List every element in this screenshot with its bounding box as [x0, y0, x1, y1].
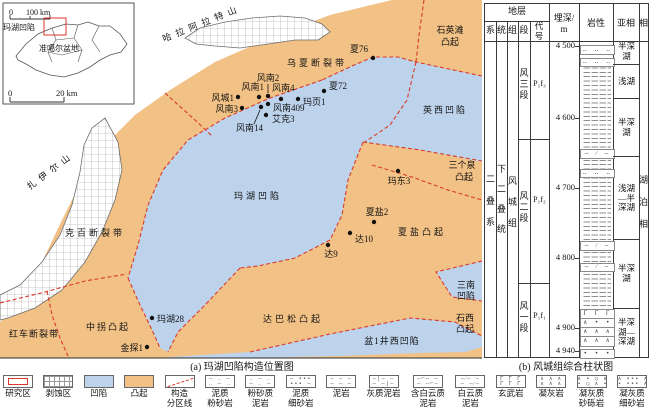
subfacies-label: 浅湖—半深湖: [614, 184, 639, 213]
svg-text:20 km: 20 km: [56, 88, 78, 98]
header-facies: 相: [639, 19, 648, 29]
grid-line: [613, 64, 639, 65]
inset-mahu-label: 玛湖凹陷: [3, 22, 35, 32]
formation-name: 风城组: [507, 171, 518, 234]
depth-tick: [575, 328, 579, 329]
header-depth: 埋深/: [549, 14, 579, 24]
region-label-zhongguai-uplift: 中拐凸起: [86, 321, 130, 332]
structural-map: 哈拉阿拉特山 扎伊尔山 乌夏断裂带 石英滩 凸起 英西凹陷 三个泉 凸起 玛湖凹…: [0, 0, 482, 374]
subfacies-label: 浅湖: [614, 77, 639, 87]
header-member: 段: [518, 26, 530, 36]
header-code: 代号: [534, 22, 544, 41]
legend-swatch-erosion-area: [43, 375, 73, 388]
depth-tick: [575, 258, 579, 259]
region-label-wuxia-fault-belt: 乌夏断裂带: [287, 57, 347, 68]
system-name: 二叠系: [485, 169, 496, 234]
region-label-xiayan-uplift: 夏盐凸起: [398, 226, 446, 237]
header-series: 统: [496, 26, 507, 36]
code-p1f1: P₁f₁: [530, 312, 549, 321]
inset-scale-label: 100 km: [26, 8, 51, 17]
legend-item: 剥蚀区: [43, 375, 73, 416]
legend-item: 构造 分区线: [165, 375, 195, 416]
code-p1f2: P₁f₂: [530, 196, 549, 205]
svg-text:风南3: 风南3: [215, 103, 238, 114]
depth-tick-label: 4 600: [549, 113, 575, 122]
legend-item: —|— —— —|— 灰质泥岩: [367, 375, 401, 416]
svg-text:夏盐2: 夏盐2: [366, 206, 389, 217]
svg-text:风南409: 风南409: [273, 102, 305, 113]
legend-swatch-limy-mudstone: —|— —— —|—: [369, 375, 399, 388]
legend-swatch-tuffaceous-glutenite: ∧ • ○ ∧• ○ ∧ •: [577, 375, 607, 388]
legend-item: — ••• ••• — 泥质 细砂岩: [286, 375, 316, 416]
svg-text:玛东3: 玛东3: [388, 175, 411, 186]
header-depth-unit: m: [549, 25, 579, 35]
grid-line: [613, 156, 639, 157]
depth-tick-label: 4 940: [549, 346, 575, 355]
subfacies-label: 半深湖: [614, 118, 639, 137]
lith-bed-dolomitic: — ⁄ —: [580, 241, 615, 251]
svg-text:风南1: 风南1: [241, 81, 264, 92]
depth-tick: [575, 118, 579, 119]
legend-item: ∧ ∧ ∧∧ ∧ ∧ 凝灰岩: [536, 375, 566, 416]
region-label-sangequan-uplift: 三个泉: [448, 159, 475, 170]
inset-basin-label: 准噶尔盆地: [39, 43, 79, 53]
legend-swatch-dolomitic-mudstone: —⁄— —— —⁄—: [455, 375, 485, 388]
header-subfacies: 亚相: [613, 19, 639, 29]
grid-line: [613, 98, 639, 99]
svg-text:风南4: 风南4: [272, 82, 295, 93]
subfacies-label: 半深湖—深湖: [614, 318, 639, 347]
legend-item: 研究区: [3, 375, 33, 416]
series-name: 下二叠统: [496, 159, 507, 239]
subfacies-label: 半深湖: [614, 264, 639, 283]
lith-bed-silty-sand: ‥ ‥ ‥: [580, 169, 615, 178]
legend-item: — — —— — — 泥岩: [326, 375, 356, 416]
region-label-kebai-fault-belt: 克百断裂带: [65, 227, 125, 238]
legend-swatch-tectonic-line: [165, 375, 195, 388]
lith-bed-silty-sand: ‥ ‥ ‥: [580, 58, 615, 67]
svg-text:夏72: 夏72: [329, 81, 347, 91]
legend-item: 凸起: [124, 375, 154, 416]
member-feng1: 风一段: [518, 301, 530, 334]
region-label-yingxi-sag: 英西凹陷: [423, 104, 467, 115]
legend-item: 凹陷: [84, 375, 114, 416]
svg-text:0: 0: [8, 88, 12, 98]
svg-text:凸起: 凸起: [455, 172, 473, 182]
svg-text:达10: 达10: [355, 233, 374, 244]
region-label-shixi-uplift: 石西: [456, 313, 474, 323]
grid-line: [613, 308, 639, 309]
legend-swatch-tuff: ∧ ∧ ∧∧ ∧ ∧: [536, 375, 566, 388]
header-strata: 地层: [485, 7, 549, 17]
depth-tick: [575, 188, 579, 189]
legend-swatch-muddy-fine-sandstone: — ••• ••• —: [286, 375, 316, 388]
svg-text:玛湖28: 玛湖28: [157, 314, 185, 324]
header-lithology: 岩性: [579, 19, 613, 29]
legend-swatch-silty-mudstone: ‥ — ‥— ‥ —: [245, 375, 275, 388]
grid-line: [613, 239, 639, 240]
lith-bed-tuff: ∧ ∧ ∧: [580, 336, 615, 347]
legend-swatch-research-area: [3, 375, 33, 388]
svg-text:凸起: 凸起: [441, 37, 459, 47]
code-p1f3: P₁f₃: [530, 80, 549, 89]
svg-text:风南14: 风南14: [236, 122, 264, 133]
grid-line: [579, 4, 580, 357]
depth-tick: [575, 351, 579, 352]
grid-line: [518, 283, 549, 284]
depth-tick-label: 4 700: [549, 183, 575, 192]
member-feng2: 风二段: [518, 191, 530, 224]
figure-mahu-sag: 哈拉阿拉特山 扎伊尔山 乌夏断裂带 石英滩 凸起 英西凹陷 三个泉 凸起 玛湖凹…: [0, 0, 650, 416]
member-feng3: 风三段: [518, 68, 530, 101]
legend-swatch-muddy-siltstone: — ‥ —‥ — ‥: [205, 375, 235, 388]
grid-line: [549, 4, 550, 357]
svg-text:凹陷: 凹陷: [457, 290, 475, 301]
lith-bed-silty-sand: ‥ ‥ ‥: [580, 45, 615, 55]
svg-text:风城1: 风城1: [211, 93, 234, 103]
depth-tick: [575, 46, 579, 47]
region-label-hongche-fault-belt: 红车断裂带: [9, 328, 59, 339]
strat-column-panel: 地层 系 统 组 段 代号 埋深/ m 岩性 亚相 相 二叠系 下二叠统 风城组…: [484, 3, 649, 358]
svg-text:玛页1: 玛页1: [303, 97, 326, 107]
legend-item: —⁄— —— —⁄— 白云质 泥岩: [455, 375, 485, 416]
legend-swatch-tuffaceous-fine-sandstone: ∧ ••• ∧• ••• ∧: [617, 375, 647, 388]
subfacies-label: 半深湖: [614, 42, 639, 61]
legend-item: Γ Γ ΓΓ Γ Γ 玄武岩: [496, 375, 526, 416]
lith-bed-dolomitic: — ⁄ —: [580, 263, 615, 272]
svg-text:夏76: 夏76: [350, 44, 369, 54]
caption-a: (a) 玛湖凹陷构造位置图: [190, 360, 294, 373]
caption-b: (b) 风城组综合柱状图: [484, 358, 648, 373]
legend-item: ∧ • ○ ∧• ○ ∧ • 凝灰质 砂砾岩: [577, 375, 607, 416]
region-label-dabasong-uplift: 达巴松凸起: [263, 313, 323, 324]
grid-line: [530, 21, 531, 357]
legend-swatch-dolomitic-bearing-mudstone: —⌐— —— —⌐—: [413, 375, 443, 388]
legend-swatch-sag: [84, 375, 114, 388]
depth-tick-label: 4 800: [549, 253, 575, 262]
lith-bed-dolomitic: — ⁄ —: [580, 149, 615, 159]
depth-tick-label: 4 900: [549, 323, 575, 332]
legend: 研究区 剥蚀区 凹陷 凸起 构造 分区线 — ‥ —‥ — ‥ 泥质 粉砂岩 ‥…: [0, 375, 650, 416]
legend-item: — ‥ —‥ — ‥ 泥质 粉砂岩: [205, 375, 235, 416]
facies-label: 湖泊相: [639, 169, 648, 235]
region-label-mahu-sag: 玛湖凹陷: [234, 190, 282, 201]
legend-item: ∧ ••• ∧• ••• ∧ 凝灰质 细砂岩: [617, 375, 647, 416]
legend-swatch-basalt: Γ Γ ΓΓ Γ Γ: [496, 375, 526, 388]
region-label-sannan-sag: 三南: [457, 279, 475, 290]
region-label-shiyingtan-uplift: 石英滩: [436, 24, 463, 35]
grid-line: [518, 139, 549, 140]
header-system: 系: [485, 26, 496, 36]
region-label-pen1-west-sag: 盆1井西凹陷: [364, 335, 420, 346]
legend-swatch-mudstone: — — —— — —: [326, 375, 356, 388]
legend-swatch-uplift: [124, 375, 154, 388]
legend-item: —⌐— —— —⌐— 含白云质 泥岩: [411, 375, 445, 416]
svg-text:凸起: 凸起: [456, 324, 474, 334]
header-formation: 组: [507, 26, 518, 36]
legend-item: ‥ — ‥— ‥ — 粉砂质 泥岩: [245, 375, 275, 416]
svg-text:艾克3: 艾克3: [272, 114, 295, 124]
svg-text:金探1: 金探1: [120, 342, 143, 353]
svg-text:达9: 达9: [324, 248, 338, 259]
depth-tick-label: 4 500: [549, 41, 575, 50]
